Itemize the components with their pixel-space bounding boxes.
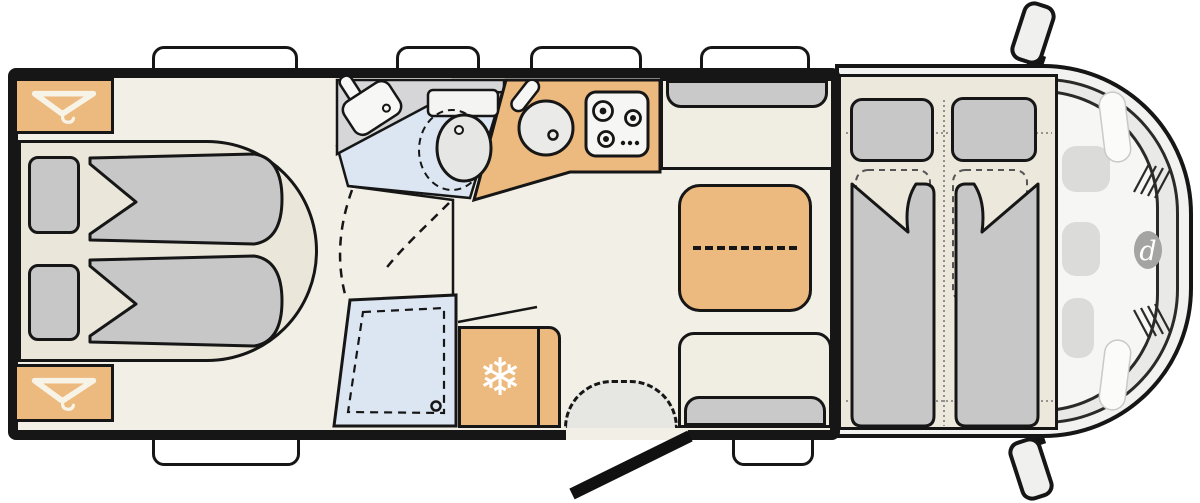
cab-bed-pillow-left (850, 98, 934, 162)
floorplan-canvas: d ❄ (0, 0, 1200, 503)
dinette-table (678, 184, 812, 312)
rear-bed-1-pillow (28, 156, 80, 234)
vehicle-front-details: d (1056, 64, 1196, 438)
dinette-wall-bench-backrest (666, 80, 828, 108)
rear-bed-1-duvet (86, 150, 286, 248)
cab-bed-duvet-left (846, 180, 938, 430)
front-grille-top (1134, 164, 1170, 198)
entry-door-open (572, 436, 690, 494)
hanger-icon (28, 371, 100, 415)
front-grille-bottom (1134, 304, 1170, 338)
hanger-icon (28, 84, 100, 128)
dinette-facing-bench-backrest (684, 396, 826, 426)
fridge-divider-line (537, 329, 540, 425)
table-extension-fold-line (693, 246, 797, 250)
wardrobe-bottom-left (14, 364, 114, 422)
headlight-bottom (1098, 339, 1132, 412)
snowflake-icon: ❄ (469, 347, 531, 409)
headlight-top (1098, 91, 1132, 164)
wing-mirror-top (1007, 0, 1058, 68)
cab-bed-pillow-right (951, 97, 1037, 162)
brand-logo-letter: d (1139, 236, 1156, 267)
cab-bed-duvet-right (952, 180, 1044, 430)
wardrobe-top-left (14, 78, 114, 134)
rear-bed-2-duvet (86, 252, 286, 350)
rear-bed-2-pillow (28, 264, 80, 341)
door-opening-gap (566, 430, 688, 440)
refrigerator: ❄ (458, 326, 561, 428)
wing-mirror-bottom (1005, 434, 1056, 503)
